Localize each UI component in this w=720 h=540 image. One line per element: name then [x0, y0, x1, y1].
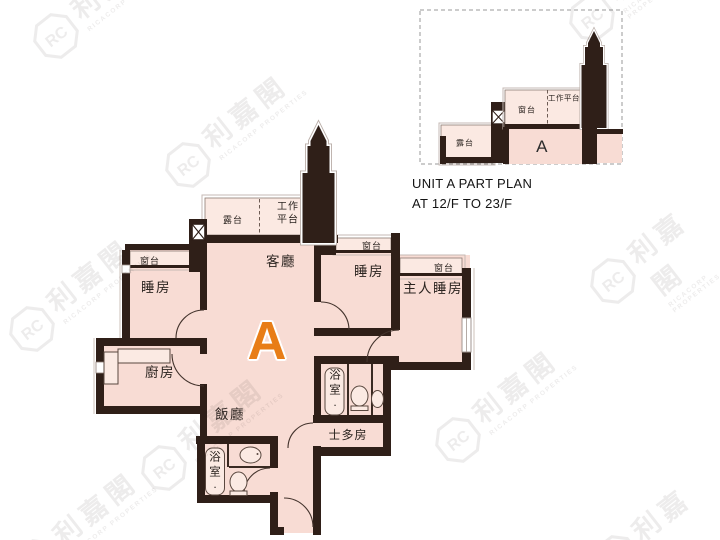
floor-plan-document: 露台 工作平台 客廳 窗台 睡房 廚房 飯廳 A 窗台 睡房 窗台 主人睡房 士… [0, 0, 720, 540]
master-toilet-base [351, 406, 368, 411]
kitchen-counter-left [104, 352, 118, 384]
kitchen-counter-top [118, 349, 170, 363]
guest-toilet [230, 472, 247, 492]
inset-spire [582, 31, 607, 128]
label-balcony: 露台 [223, 215, 243, 225]
master-sink [372, 391, 384, 408]
inset-label-balcony: 露台 [456, 138, 474, 147]
inset-right-floor [597, 134, 622, 163]
label-guest-bathroom: 浴室· [208, 451, 222, 496]
label-dining-room: 飯廳 [215, 407, 245, 423]
caption-line-1: UNIT A PART PLAN [412, 174, 532, 194]
label-utility-platform: 工作平台 [276, 202, 300, 227]
inset-label-utility-platform: 工作平台 [548, 95, 580, 104]
pipe-duct [192, 224, 205, 240]
caption-line-2: AT 12/F TO 23/F [412, 194, 532, 214]
master-toilet [351, 386, 368, 406]
label-kitchen: 廚房 [145, 365, 175, 381]
guest-bath-divider-2 [229, 466, 270, 468]
guest-sink [240, 447, 261, 463]
label-master-bathroom: 浴室· [328, 369, 342, 414]
floor-bedroom-2 [314, 248, 398, 336]
label-bedroom-1: 睡房 [141, 280, 171, 296]
label-bay-window-2: 窗台 [362, 241, 382, 251]
inset-unit-letter: A [536, 137, 548, 157]
master-bath-divider-2 [371, 364, 373, 415]
master-bath-divider [347, 364, 349, 415]
label-store-room: 士多房 [328, 429, 367, 443]
label-master-bedroom: 主人睡房 [403, 281, 463, 297]
label-living-room: 客廳 [266, 254, 296, 270]
inset-part-plan [420, 10, 623, 165]
spire-structure [303, 125, 335, 243]
bedroom-1-window [122, 265, 130, 273]
label-bedroom-2: 睡房 [354, 264, 384, 280]
label-master-bay-window: 窗台 [434, 263, 454, 273]
label-bay-window-1: 窗台 [140, 256, 160, 266]
master-bay-window-sill [400, 273, 462, 276]
inset-caption: UNIT A PART PLAN AT 12/F TO 23/F [412, 174, 532, 213]
guest-toilet-base [230, 491, 247, 496]
inset-label-bay-window: 窗台 [518, 105, 536, 114]
guest-bath-divider [227, 444, 229, 467]
unit-letter: A [248, 310, 287, 372]
